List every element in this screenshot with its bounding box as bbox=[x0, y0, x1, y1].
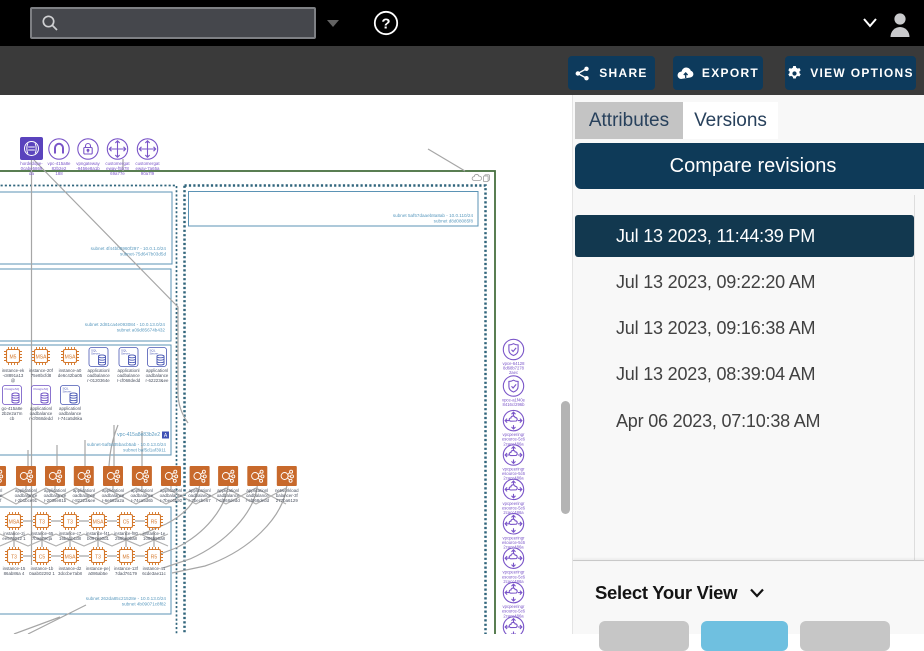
svg-text:instance-a0de6c42ba05: instance-a0de6c42ba05 bbox=[58, 368, 83, 378]
svg-text:T3: T3 bbox=[39, 520, 45, 526]
svg-text:applicationloadbalancer-6e682a: applicationloadbalancer-6e682a2a bbox=[102, 488, 125, 503]
svg-text:applicationloadbalancer-cf068d: applicationloadbalancer-cf068dedd bbox=[246, 488, 270, 503]
svg-text:C5: C5 bbox=[123, 520, 130, 526]
svg-text:instance-f80256be0ba8: instance-f80256be0ba8 bbox=[114, 531, 138, 541]
svg-text:applicationloadbalancer-74ca5d: applicationloadbalancer-74ca5d6ka bbox=[58, 406, 83, 421]
svg-text:applicationloadbalancer-62223&: applicationloadbalancer-62223&ee bbox=[146, 368, 170, 383]
svg-text:instance-c716ba1b1d8: instance-c716ba1b1d8 bbox=[59, 531, 82, 541]
svg-text:vpngateway-9456e8a1b: vpngateway-9456e8a1b bbox=[76, 161, 100, 171]
svg-text:M5: M5 bbox=[123, 555, 130, 561]
svg-text:applicationloadbalancer-cf068d: applicationloadbalancer-cf068dedd bbox=[117, 368, 141, 383]
svg-text:instance-2jee576012 1: instance-2jee576012 1 bbox=[2, 531, 26, 541]
svg-text:vpce-641288d68b72782aec: vpce-641288d68b72782aec bbox=[503, 361, 526, 375]
svg-text:T3: T3 bbox=[11, 555, 17, 561]
svg-text:vpcpeeringresource-5c62cacc486: vpcpeeringresource-5c62cacc486a bbox=[502, 570, 526, 584]
svg-text:hordedope-0cabe5869da: hordedope-0cabe5869da bbox=[20, 161, 43, 176]
svg-text:vpcpeeringresource-5c62cacc486: vpcpeeringresource-5c62cacc486a bbox=[502, 467, 526, 481]
svg-text:instance-1b0aab02292 1: instance-1b0aab02292 1 bbox=[29, 566, 55, 576]
svg-text:customergateway-f5b7869a77e: customergateway-f5b7869a77e bbox=[105, 161, 130, 176]
svg-text:R5: R5 bbox=[151, 555, 158, 561]
svg-text:T3: T3 bbox=[95, 555, 101, 561]
svg-text:instance-416cde3ae11c: instance-416cde3ae11c bbox=[142, 566, 166, 576]
svg-text:applicationloadbalancer-cf068d: applicationloadbalancer-cf068dedd bbox=[216, 488, 240, 503]
svg-text:instance-20f75e8bcfd8: instance-20f75e8bcfd8 bbox=[29, 368, 54, 378]
svg-text:MSA: MSA bbox=[9, 520, 21, 526]
svg-text:vpcpeeringresource-5c62cacc486: vpcpeeringresource-5c62cacc486a bbox=[502, 535, 526, 549]
svg-text:instance-13f7dad76179: instance-13f7dad76179 bbox=[114, 566, 139, 576]
svg-text:vpc-415a8e83b2e2: vpc-415a8e83b2e2 bbox=[117, 432, 160, 438]
svg-text:applicationloadbalancer-cf068d: applicationloadbalancer-cf068dedd bbox=[29, 406, 53, 421]
svg-text:instance-1e1086b56a8: instance-1e1086b56a8 bbox=[143, 531, 166, 541]
svg-text:?: ? bbox=[381, 16, 390, 33]
svg-text:instance-f41b097e60d1: instance-f41b097e60d1 bbox=[86, 531, 110, 541]
svg-text:M5: M5 bbox=[10, 355, 17, 361]
svg-text:instance-pe(a086ab5e: instance-pe(a086ab5e bbox=[86, 566, 111, 576]
svg-text:C5: C5 bbox=[39, 555, 46, 561]
svg-text:instance-1586ab86a 4: instance-1586ab86a 4 bbox=[3, 566, 26, 576]
svg-text:MSA: MSA bbox=[36, 355, 48, 361]
svg-text:vpcpeeringresource-5c62cacc486: vpcpeeringresource-5c62cacc486a bbox=[502, 432, 526, 446]
svg-text:vpcpeeringresource-5c62cacc486: vpcpeeringresource-5c62cacc486a bbox=[502, 501, 526, 515]
svg-text:vpce-a1f40e8416c/296b: vpce-a1f40e8416c/296b bbox=[502, 398, 526, 408]
svg-text:vpc-415a8e82b2e2188: vpc-415a8e82b2e2188 bbox=[48, 161, 72, 176]
svg-text:R5: R5 bbox=[151, 520, 158, 526]
svg-text:MSA: MSA bbox=[93, 520, 105, 526]
svg-text:applicationloadbalancer-82223&: applicationloadbalancer-82223&ee bbox=[72, 488, 96, 503]
svg-text:applicationloadbalancer-7becbe: applicationloadbalancer-7becbe67 bbox=[188, 488, 211, 503]
svg-text:MSA: MSA bbox=[65, 355, 77, 361]
svg-text:instance-657baa79cja: instance-657baa79cja bbox=[31, 531, 54, 541]
svg-text:applicationloadbalancer-012036: applicationloadbalancer-0120364e bbox=[87, 368, 110, 383]
svg-text:T3: T3 bbox=[67, 520, 73, 526]
svg-text:customergateway-7a65a90a7f9: customergateway-7a65a90a7f9 bbox=[135, 161, 160, 176]
svg-text:applicationloadbalancer-74ca5d: applicationloadbalancer-74ca5d6b bbox=[131, 488, 154, 503]
svg-text:applicationloadbalancer-2b1bce: applicationloadbalancer-2b1bce91 bbox=[15, 488, 38, 503]
svg-text:instance-d23dccbe7ab8: instance-d23dccbe7ab8 bbox=[58, 566, 82, 576]
svg-text:MSA: MSA bbox=[65, 555, 77, 561]
svg-text:networkloadbalancer-3f277ba612: networkloadbalancer-3f277ba6129 bbox=[275, 488, 299, 503]
svg-text:applicationloadbalancer-2036e8: applicationloadbalancer-2036e81b bbox=[44, 488, 67, 503]
svg-text:vpcpeeringresource-5c62cacc486: vpcpeeringresource-5c62cacc486a bbox=[502, 604, 526, 618]
svg-text:applicationloadbalancer-7bec6b: applicationloadbalancer-7bec6b92 bbox=[160, 488, 183, 503]
